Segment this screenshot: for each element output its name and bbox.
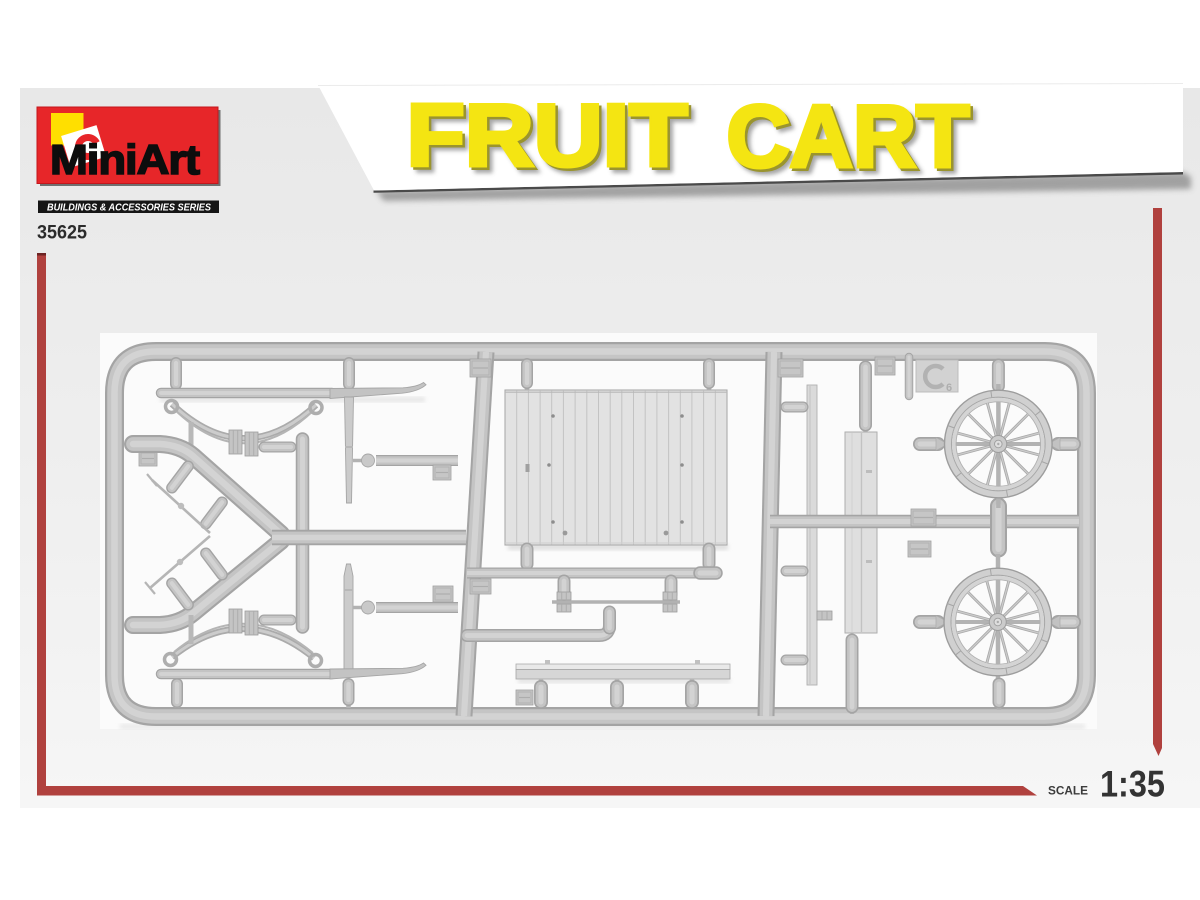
svg-text:BUILDINGS & ACCESSORIES SERIES: BUILDINGS & ACCESSORIES SERIES: [47, 203, 211, 214]
svg-text:FRUIT: FRUIT: [407, 86, 688, 185]
svg-text:6: 6: [946, 382, 952, 394]
svg-text:CART: CART: [727, 87, 970, 186]
svg-text:1:35: 1:35: [1100, 764, 1165, 805]
svg-text:35625: 35625: [37, 222, 87, 244]
svg-text:SCALE: SCALE: [1048, 786, 1088, 798]
svg-text:MiniArt: MiniArt: [50, 136, 200, 183]
